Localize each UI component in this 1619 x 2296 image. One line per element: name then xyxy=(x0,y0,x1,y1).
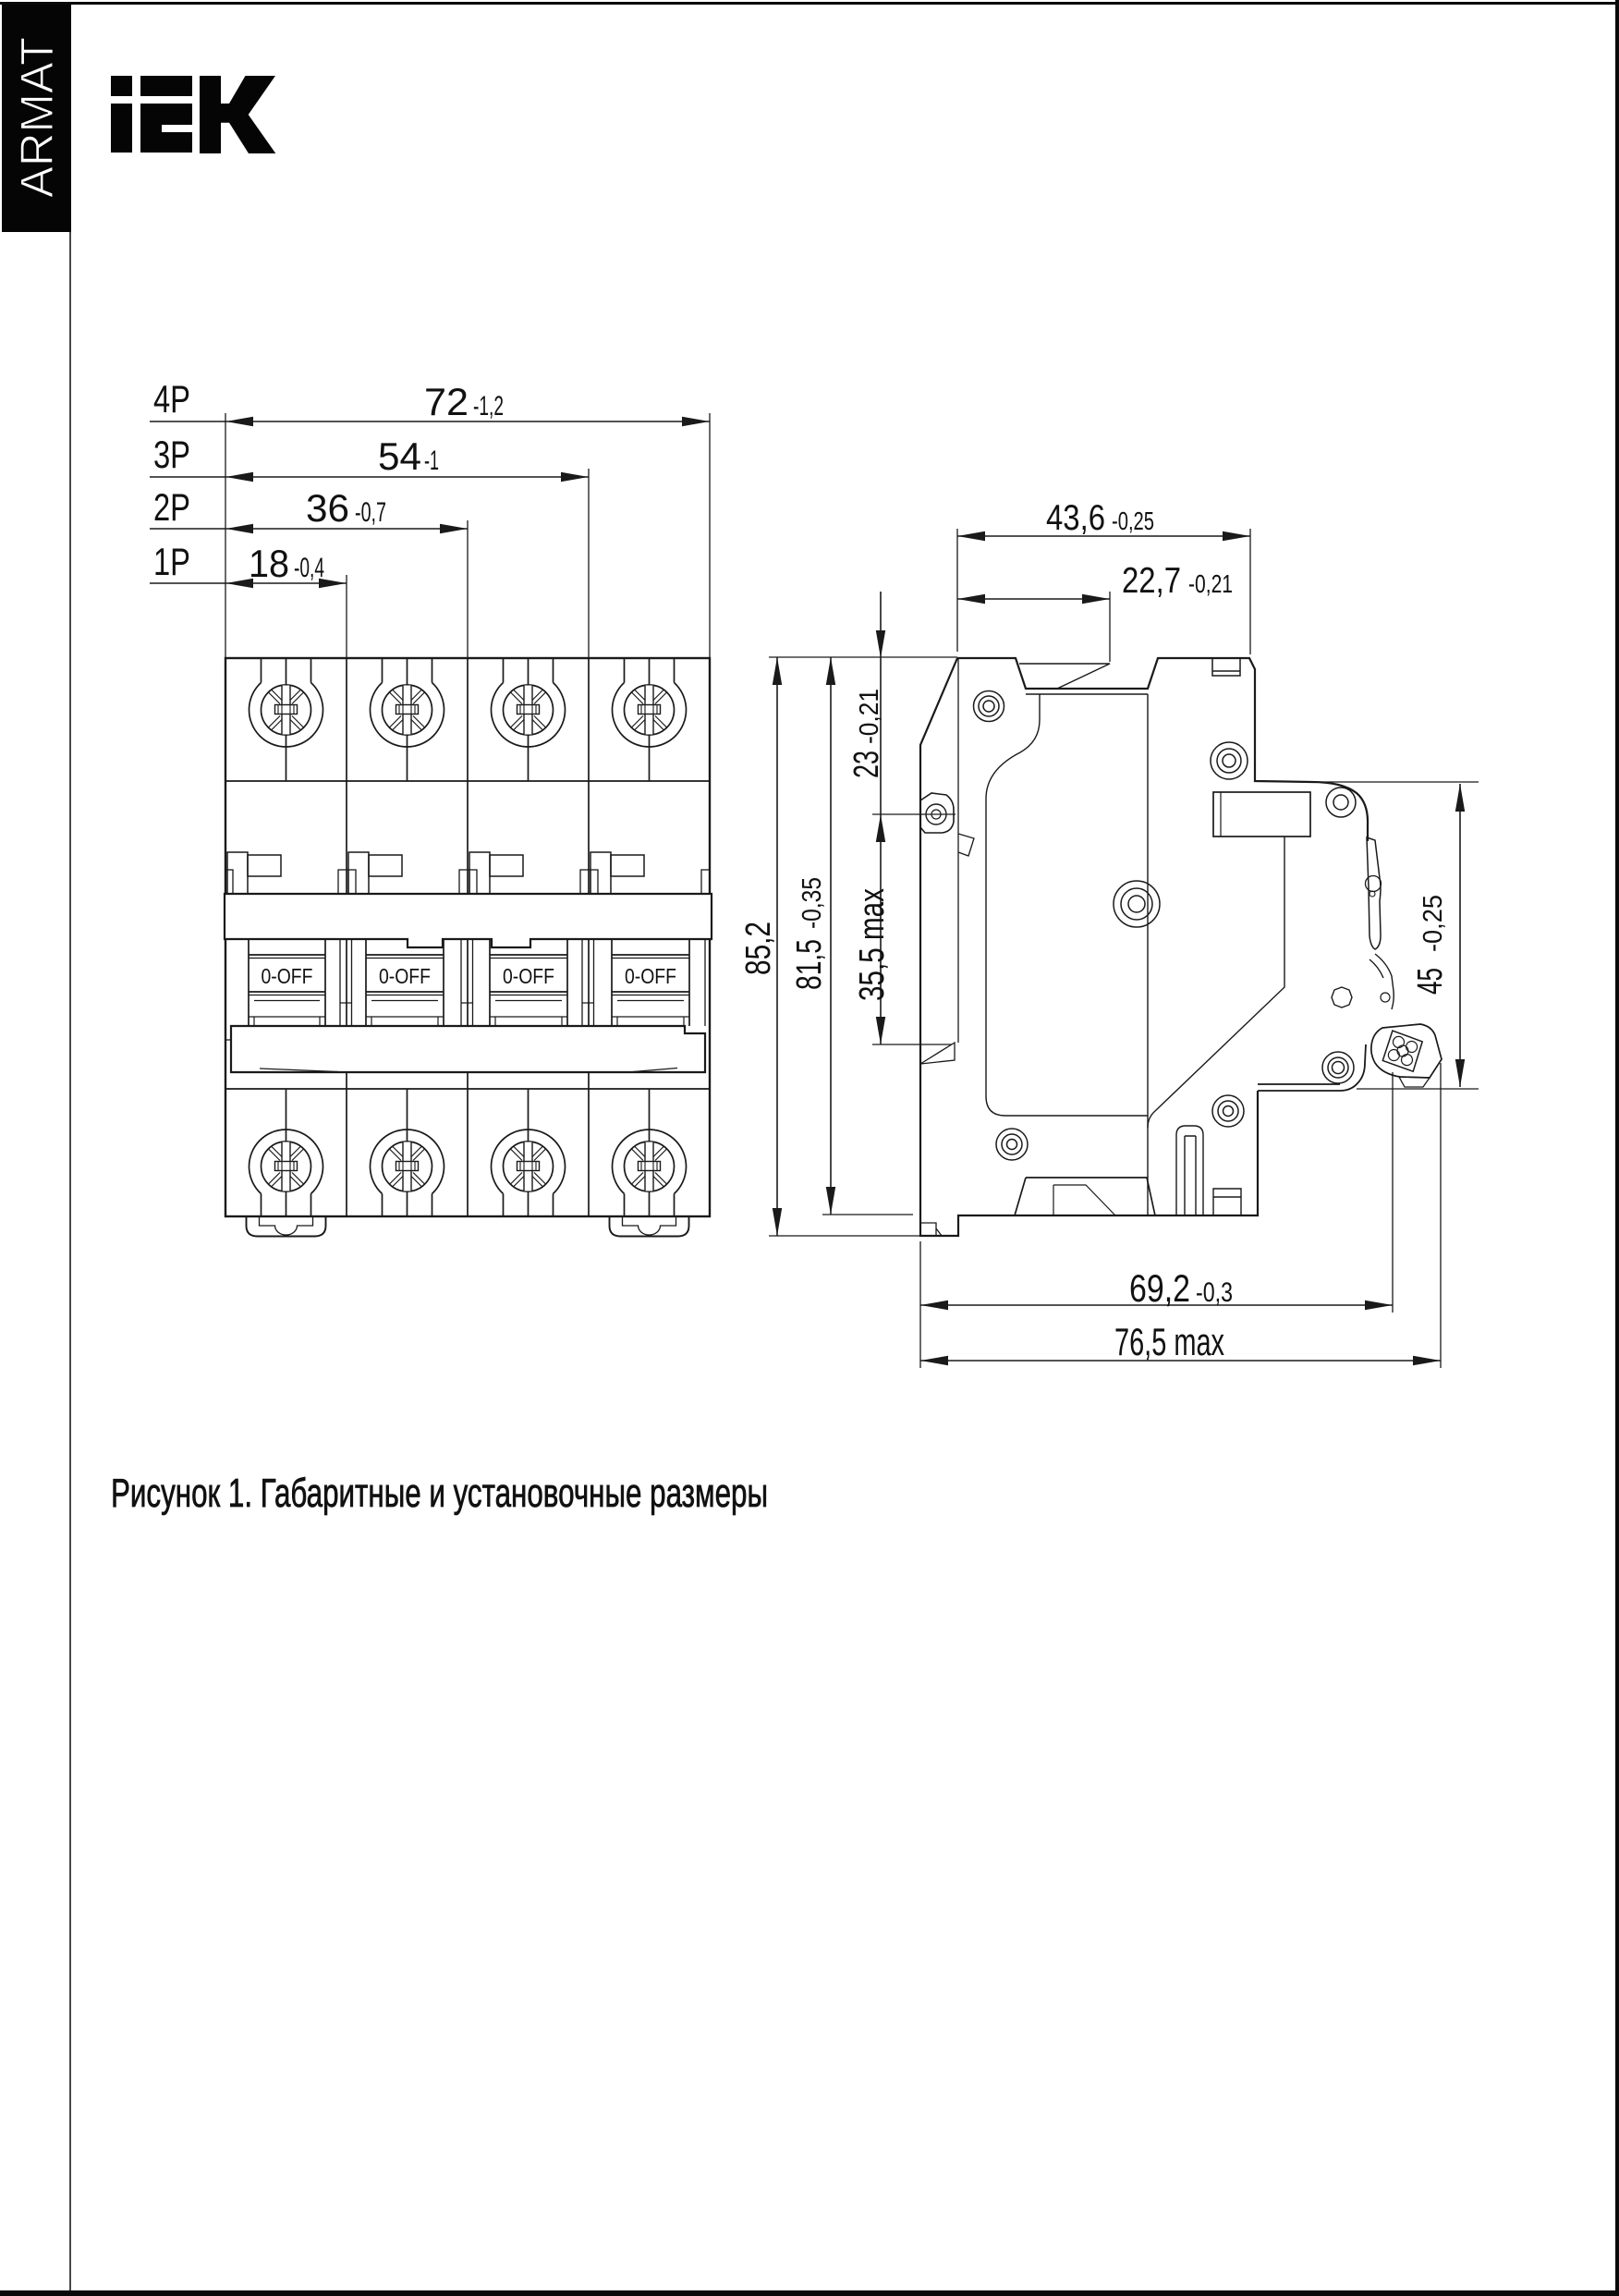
svg-text:69,2: 69,2 xyxy=(1129,1266,1190,1310)
svg-text:0-OFF: 0-OFF xyxy=(262,964,313,988)
svg-text:72: 72 xyxy=(424,380,469,423)
svg-text:2P: 2P xyxy=(153,485,190,529)
svg-text:Рисунок 1. Габаритные и устано: Рисунок 1. Габаритные и установочные раз… xyxy=(111,1471,768,1516)
svg-text:-1,2: -1,2 xyxy=(473,391,504,421)
svg-text:-0,25: -0,25 xyxy=(1418,895,1448,952)
svg-text:0-OFF: 0-OFF xyxy=(503,964,554,988)
svg-text:81,5: 81,5 xyxy=(790,939,829,990)
svg-text:23: 23 xyxy=(847,751,886,778)
svg-text:54: 54 xyxy=(378,434,421,478)
svg-text:36: 36 xyxy=(306,486,349,530)
svg-text:22,7: 22,7 xyxy=(1122,561,1181,601)
svg-text:-0,21: -0,21 xyxy=(1188,569,1233,598)
svg-text:-0,3: -0,3 xyxy=(1196,1277,1233,1308)
svg-text:45: 45 xyxy=(1411,968,1450,995)
svg-text:0-OFF: 0-OFF xyxy=(625,964,676,988)
svg-text:-0,25: -0,25 xyxy=(1112,507,1154,535)
svg-text:1P: 1P xyxy=(153,540,190,583)
svg-text:85,2: 85,2 xyxy=(739,922,778,975)
svg-text:-1: -1 xyxy=(424,446,439,476)
svg-text:ARMAT: ARMAT xyxy=(11,37,63,198)
svg-text:43,6: 43,6 xyxy=(1046,498,1105,538)
svg-text:0-OFF: 0-OFF xyxy=(379,964,431,988)
svg-text:18: 18 xyxy=(249,542,289,585)
svg-text:-0,7: -0,7 xyxy=(355,497,386,528)
svg-text:-0,35: -0,35 xyxy=(797,877,827,929)
svg-text:3P: 3P xyxy=(153,433,190,476)
svg-text:76,5 max: 76,5 max xyxy=(1114,1320,1224,1363)
svg-text:-0,4: -0,4 xyxy=(294,553,324,583)
svg-text:35,5 max: 35,5 max xyxy=(853,888,892,1001)
svg-text:-0,21: -0,21 xyxy=(855,689,884,744)
svg-text:4P: 4P xyxy=(153,377,190,421)
